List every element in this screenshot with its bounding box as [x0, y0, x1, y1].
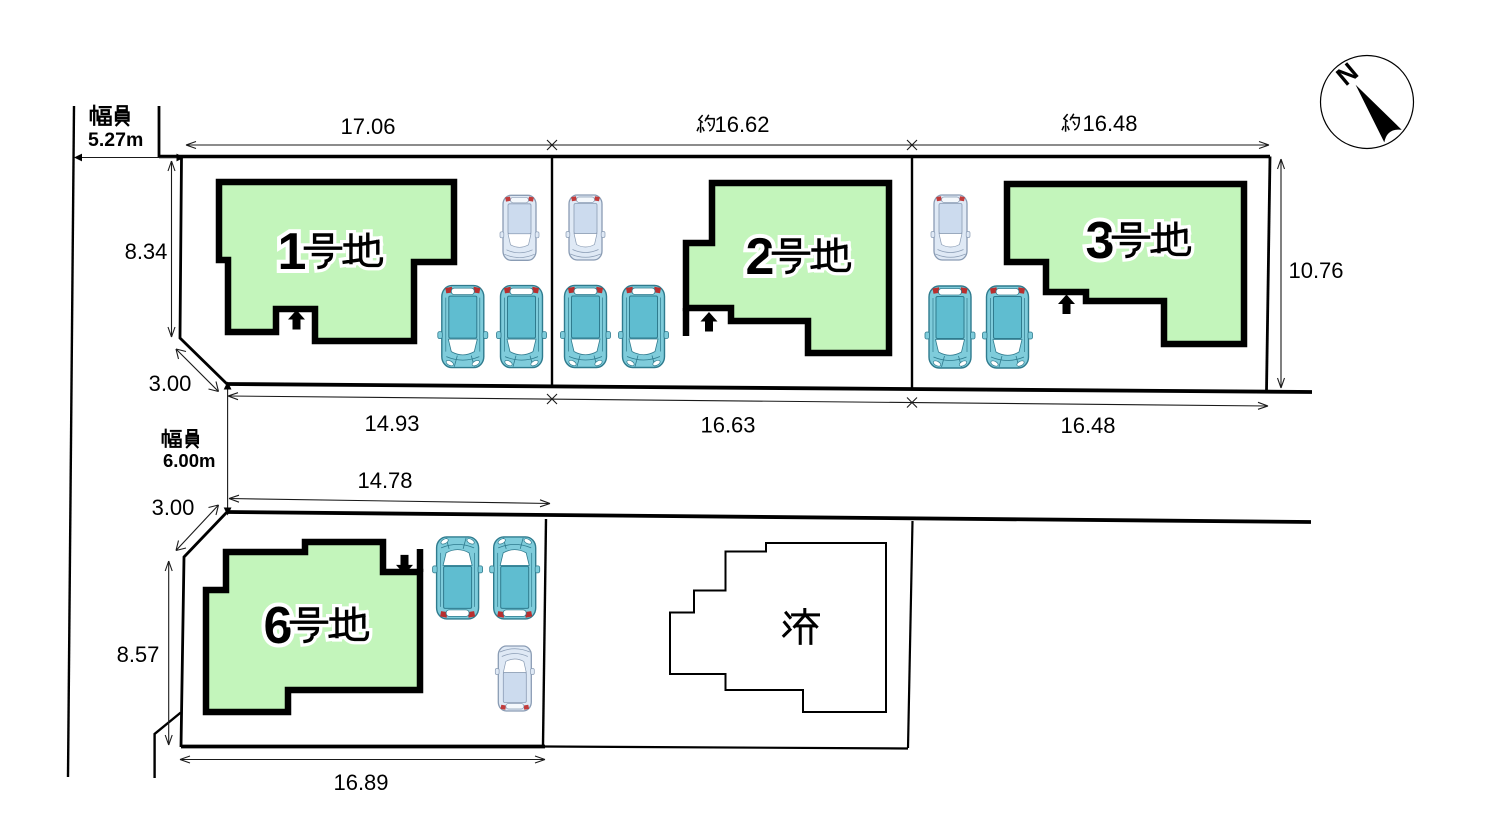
- svg-text:14.78: 14.78: [357, 468, 412, 493]
- svg-text:10.76: 10.76: [1288, 258, 1343, 283]
- svg-text:16.89: 16.89: [333, 770, 388, 795]
- svg-text:17.06: 17.06: [340, 114, 395, 139]
- svg-text:16.48: 16.48: [1060, 413, 1115, 438]
- svg-text:6.00m: 6.00m: [163, 450, 215, 471]
- svg-text:16.62: 16.62: [714, 112, 769, 137]
- svg-text:8.57: 8.57: [117, 642, 160, 667]
- svg-text:3.00: 3.00: [149, 371, 192, 396]
- svg-text:16.63: 16.63: [700, 413, 755, 438]
- svg-text:16.48: 16.48: [1082, 111, 1137, 136]
- svg-text:3.00: 3.00: [152, 495, 195, 520]
- svg-text:8.34: 8.34: [125, 239, 168, 264]
- svg-text:14.93: 14.93: [364, 411, 419, 436]
- svg-text:5.27m: 5.27m: [88, 129, 143, 151]
